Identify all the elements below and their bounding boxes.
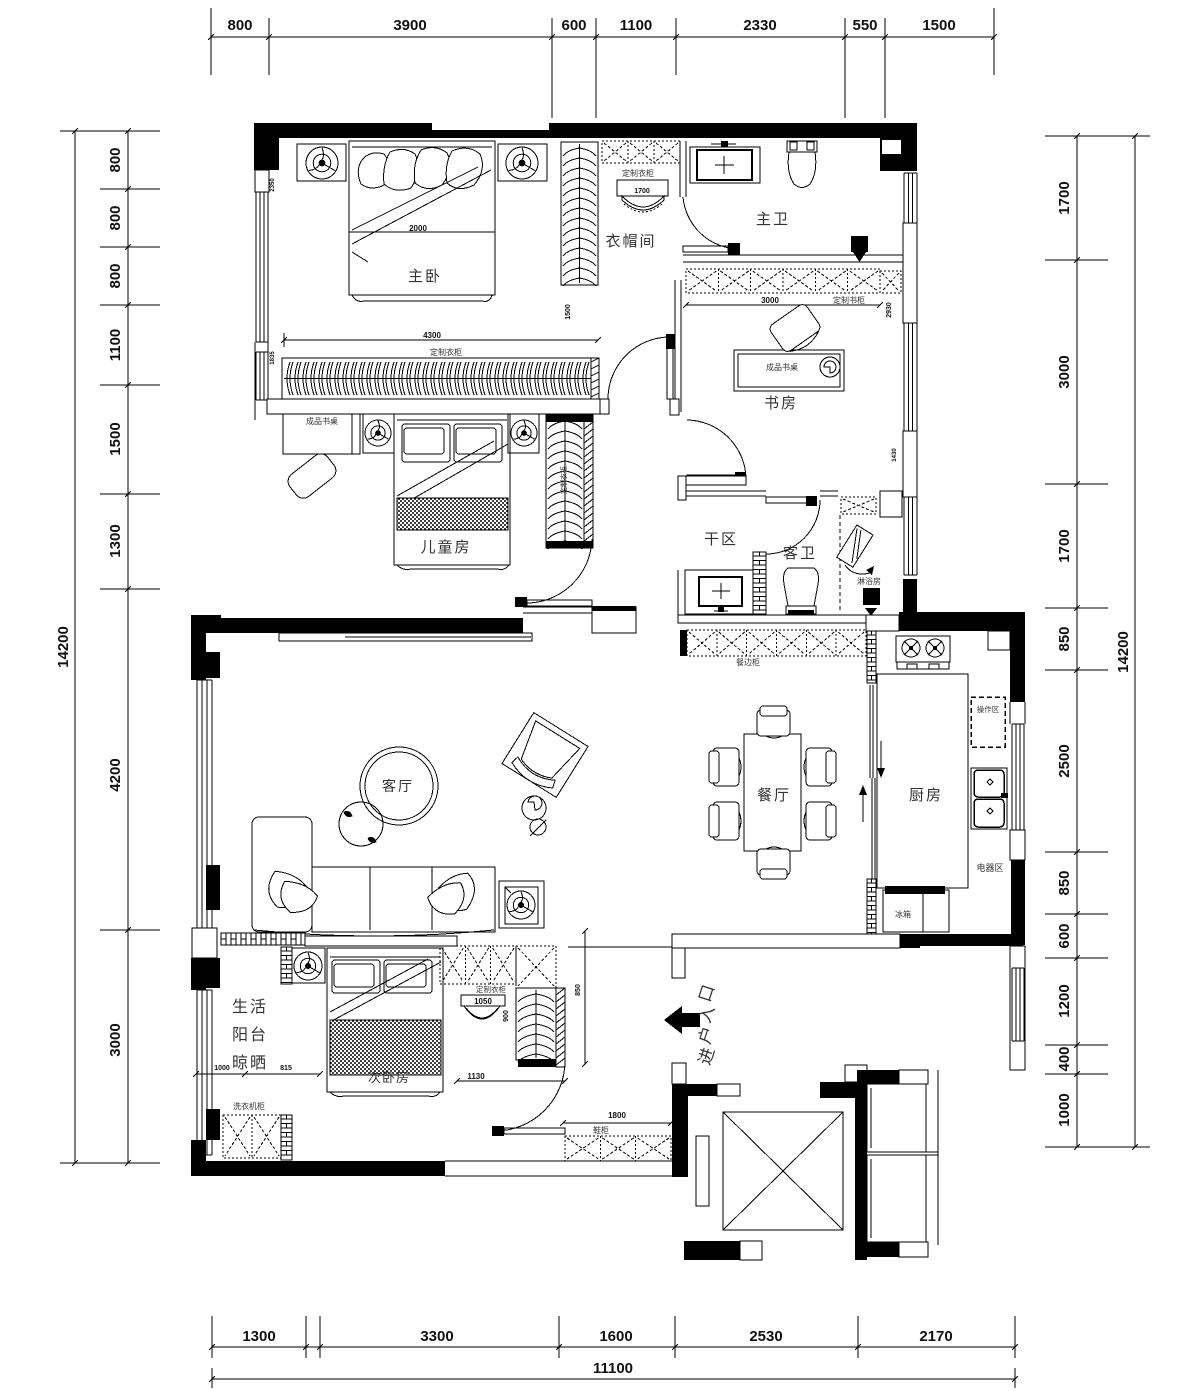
svg-text:14200: 14200 — [55, 626, 72, 668]
svg-text:1050: 1050 — [474, 997, 492, 1006]
svg-text:1000: 1000 — [1056, 1093, 1073, 1126]
svg-text:800: 800 — [107, 205, 124, 230]
svg-text:定制衣柜: 定制衣柜 — [622, 168, 654, 178]
svg-text:阳台: 阳台 — [232, 1026, 268, 1044]
svg-text:厨房: 厨房 — [909, 787, 943, 804]
svg-text:2530: 2530 — [749, 1328, 782, 1345]
svg-text:衣帽间: 衣帽间 — [605, 233, 656, 250]
svg-text:800: 800 — [107, 263, 124, 288]
svg-text:1000: 1000 — [214, 1065, 230, 1072]
svg-text:干区: 干区 — [704, 531, 738, 548]
svg-text:1500: 1500 — [565, 304, 572, 320]
svg-text:900: 900 — [503, 1010, 510, 1022]
svg-text:800: 800 — [227, 17, 252, 34]
svg-text:600: 600 — [561, 17, 586, 34]
svg-text:1430: 1430 — [892, 448, 898, 462]
svg-text:14200: 14200 — [1115, 631, 1132, 673]
svg-text:操作区: 操作区 — [977, 704, 1000, 714]
svg-text:800: 800 — [107, 147, 124, 172]
svg-text:洗衣机柜: 洗衣机柜 — [233, 1101, 265, 1111]
svg-text:1600: 1600 — [599, 1328, 632, 1345]
svg-text:主卧: 主卧 — [408, 268, 442, 285]
svg-text:成品书桌: 成品书桌 — [766, 362, 798, 372]
svg-text:定制衣柜: 定制衣柜 — [559, 466, 568, 494]
svg-text:1130: 1130 — [467, 1072, 485, 1081]
svg-text:餐厅: 餐厅 — [757, 787, 791, 804]
svg-text:1700: 1700 — [1056, 529, 1073, 562]
svg-text:淋浴房: 淋浴房 — [857, 576, 881, 586]
svg-text:儿童房: 儿童房 — [420, 538, 471, 556]
svg-text:鞋柜: 鞋柜 — [593, 1125, 609, 1135]
svg-text:次卧房: 次卧房 — [368, 1070, 410, 1085]
svg-text:2350: 2350 — [270, 178, 276, 192]
svg-text:2170: 2170 — [919, 1328, 952, 1345]
svg-text:1800: 1800 — [608, 1111, 626, 1120]
svg-text:815: 815 — [280, 1065, 292, 1072]
svg-text:成品书桌: 成品书桌 — [306, 416, 338, 426]
svg-text:冰箱: 冰箱 — [895, 909, 911, 919]
svg-text:2000: 2000 — [409, 224, 427, 233]
svg-text:3000: 3000 — [761, 296, 779, 305]
svg-text:晾晒: 晾晒 — [232, 1054, 268, 1072]
svg-text:600: 600 — [1056, 923, 1073, 948]
svg-text:客厅: 客厅 — [382, 778, 414, 794]
svg-text:1100: 1100 — [620, 17, 653, 34]
svg-text:4300: 4300 — [423, 331, 441, 340]
svg-text:书房: 书房 — [764, 395, 798, 412]
svg-text:3000: 3000 — [1056, 355, 1073, 388]
svg-text:400: 400 — [1056, 1046, 1073, 1071]
svg-text:1300: 1300 — [107, 524, 124, 557]
svg-text:11100: 11100 — [593, 1360, 633, 1377]
svg-text:1700: 1700 — [634, 188, 650, 195]
svg-text:3300: 3300 — [420, 1328, 453, 1345]
svg-text:定制书柜: 定制书柜 — [833, 295, 865, 305]
svg-text:1300: 1300 — [242, 1328, 275, 1345]
svg-text:电器区: 电器区 — [976, 862, 1003, 873]
svg-text:2500: 2500 — [1056, 744, 1073, 777]
svg-text:客卫: 客卫 — [783, 545, 817, 562]
svg-text:1500: 1500 — [107, 422, 124, 455]
svg-text:850: 850 — [1056, 870, 1073, 895]
svg-text:餐边柜: 餐边柜 — [736, 657, 760, 667]
svg-text:550: 550 — [852, 17, 877, 34]
svg-text:850: 850 — [575, 984, 582, 996]
svg-text:1835: 1835 — [270, 351, 276, 365]
svg-text:主卫: 主卫 — [756, 211, 790, 228]
svg-text:3000: 3000 — [107, 1023, 124, 1056]
svg-text:2330: 2330 — [743, 17, 776, 34]
svg-text:1700: 1700 — [1056, 181, 1073, 214]
svg-text:1500: 1500 — [922, 17, 955, 34]
svg-text:1100: 1100 — [107, 329, 124, 362]
svg-text:定制衣柜: 定制衣柜 — [430, 347, 462, 357]
svg-text:2930: 2930 — [886, 302, 893, 318]
svg-text:生活: 生活 — [232, 998, 268, 1016]
svg-text:850: 850 — [1056, 626, 1073, 651]
svg-text:4200: 4200 — [107, 758, 124, 791]
svg-text:定制衣柜: 定制衣柜 — [476, 984, 506, 994]
svg-text:1200: 1200 — [1056, 984, 1073, 1017]
svg-text:3900: 3900 — [393, 17, 426, 34]
